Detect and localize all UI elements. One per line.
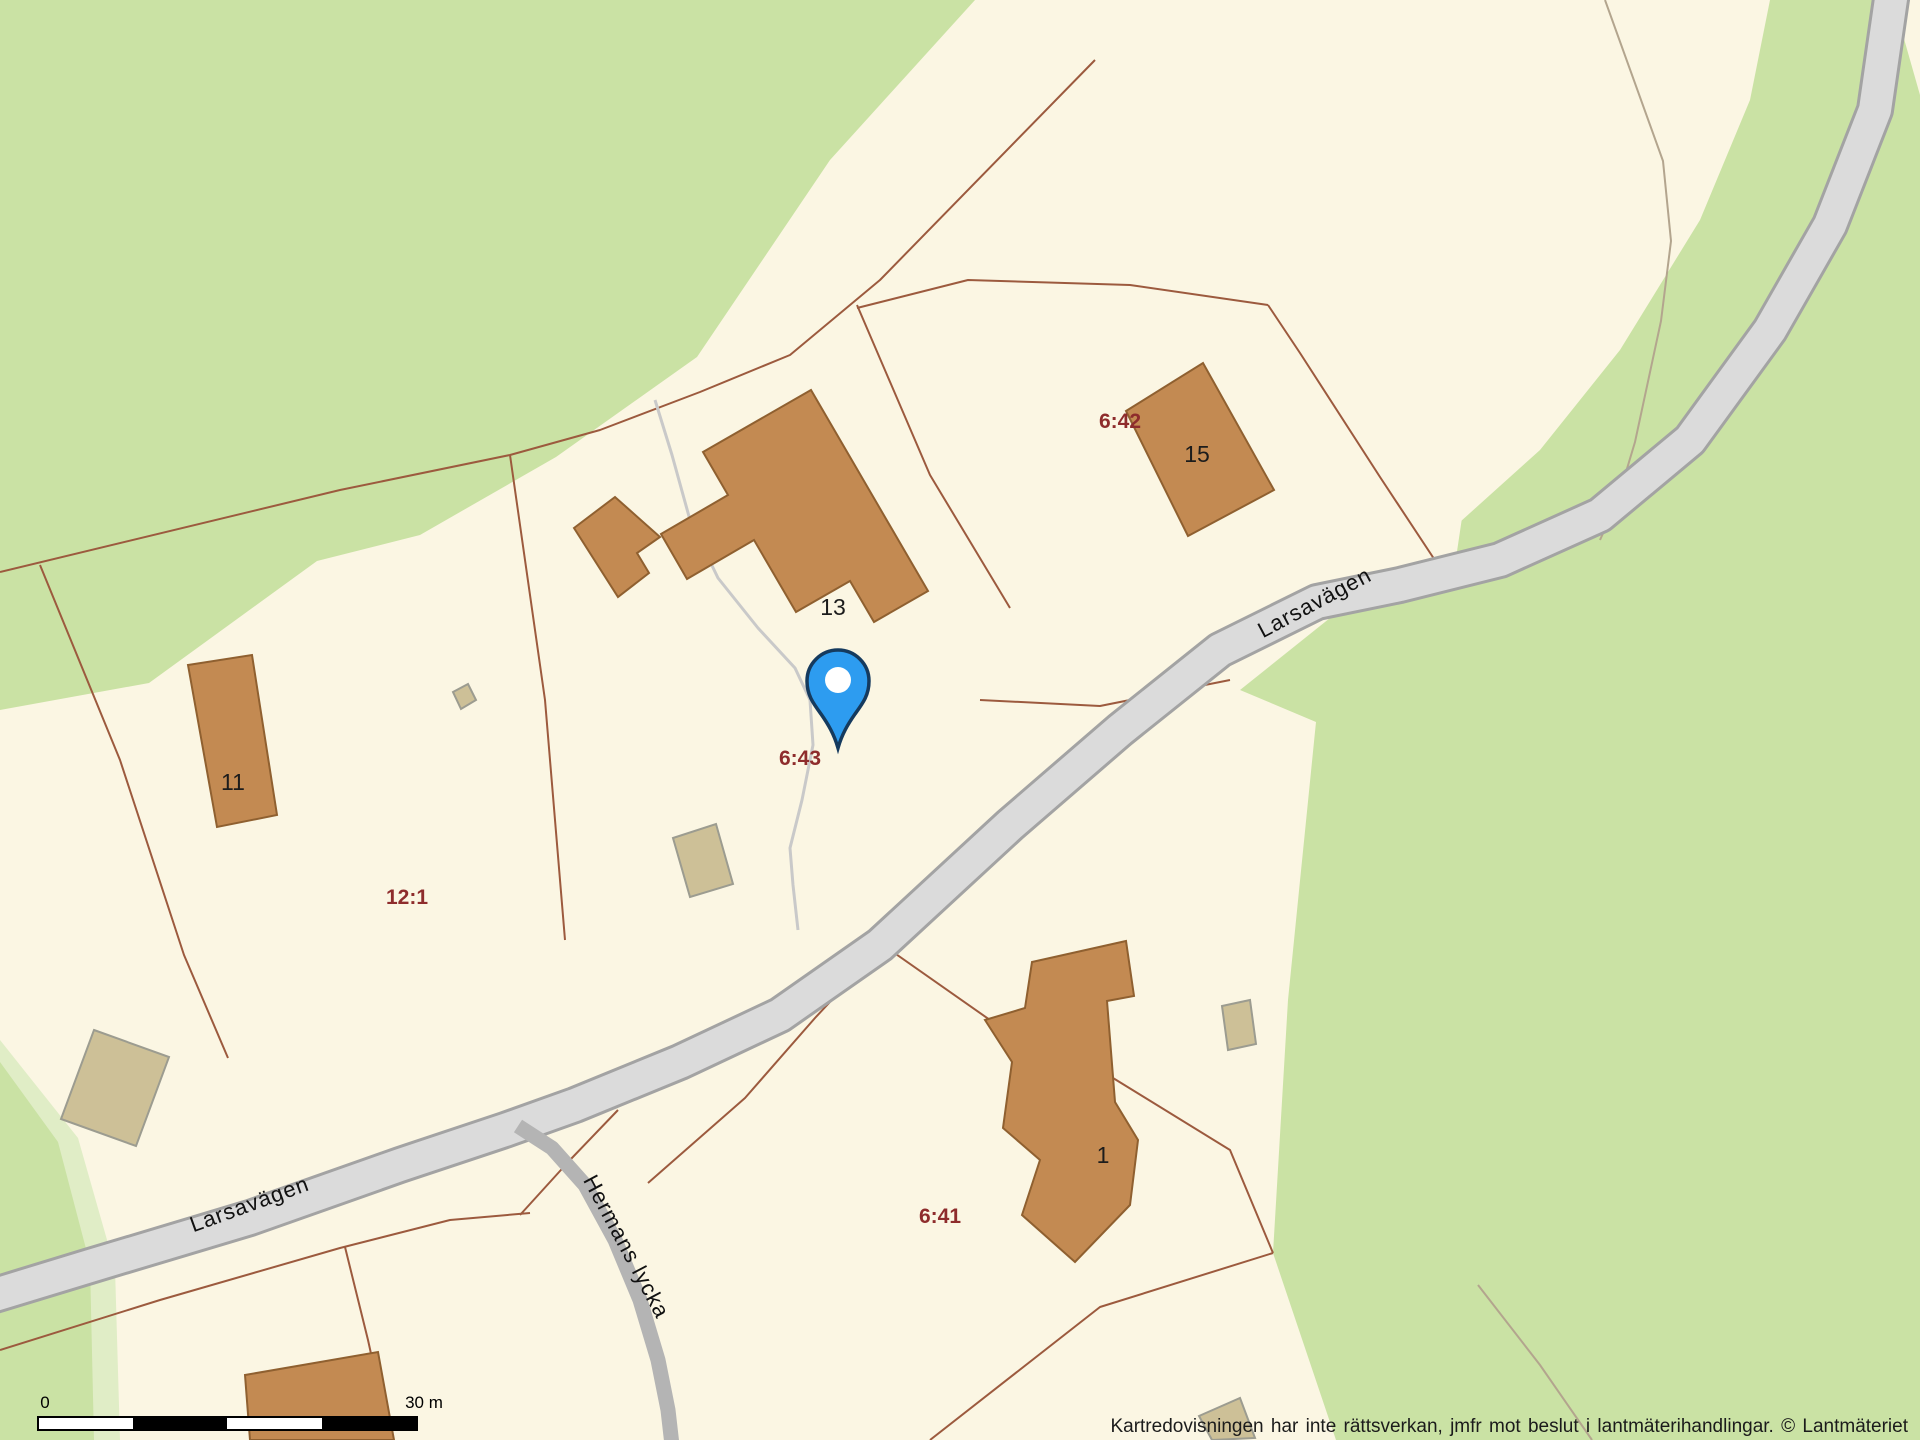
scale-end-label: 30 m [405, 1393, 443, 1412]
attribution: Kartredovisningen har inte rättsverkan, … [1110, 1416, 1908, 1437]
location-marker-hole [825, 667, 851, 693]
map-canvas[interactable]: 6:42 6:43 12:1 6:41 15 13 11 1 Larsaväge… [0, 0, 1920, 1440]
shed [1222, 1000, 1256, 1050]
parcel-label-121: 12:1 [386, 886, 428, 909]
parcel-label-643: 6:43 [779, 747, 821, 770]
parcel-label-642: 6:42 [1099, 410, 1141, 433]
parcel-label-641: 6:41 [919, 1205, 961, 1228]
building-label-13: 13 [820, 594, 846, 620]
building-label-11: 11 [221, 769, 245, 795]
scale-start-label: 0 [40, 1393, 49, 1412]
building-label-1: 1 [1097, 1142, 1110, 1168]
building-label-15: 15 [1184, 441, 1210, 467]
